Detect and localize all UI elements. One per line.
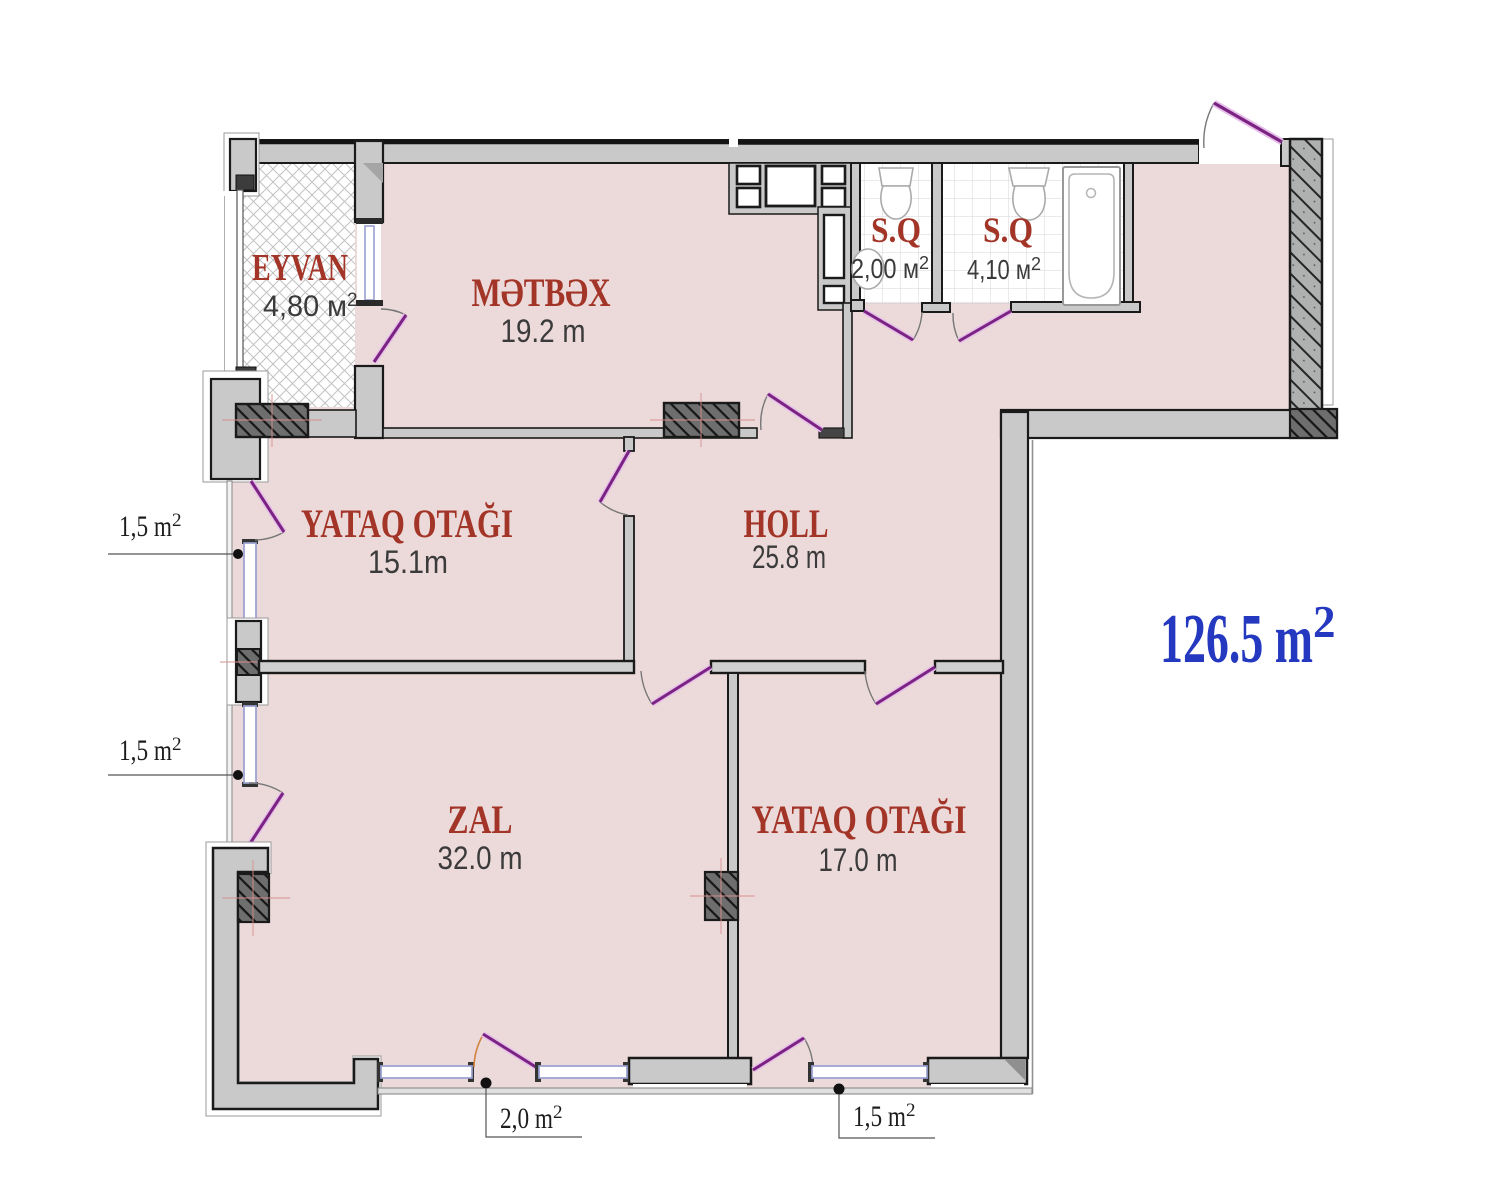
svg-text:MƏTBƏX: MƏTBƏX (472, 270, 611, 315)
svg-text:2,00 м2: 2,00 м2 (851, 253, 929, 284)
svg-text:126.5 m2: 126.5 m2 (1160, 597, 1336, 678)
svg-text:32.0 m: 32.0 m (438, 840, 523, 876)
svg-text:YATAQ OTAĞI: YATAQ OTAĞI (752, 797, 967, 842)
svg-text:15.1m: 15.1m (368, 544, 448, 580)
svg-text:EYVAN: EYVAN (252, 247, 348, 289)
svg-text:25.8 m: 25.8 m (752, 539, 826, 575)
svg-text:YATAQ OTAĞI: YATAQ OTAĞI (301, 501, 513, 546)
svg-text:19.2 m: 19.2 m (501, 313, 586, 349)
svg-text:ZAL: ZAL (448, 797, 513, 842)
svg-text:17.0 m: 17.0 m (819, 842, 898, 878)
svg-text:4,10 м2: 4,10 м2 (967, 254, 1041, 285)
svg-text:4,80 м2: 4,80 м2 (263, 290, 358, 323)
svg-text:S.Q: S.Q (983, 210, 1033, 250)
svg-text:S.Q: S.Q (871, 210, 921, 250)
